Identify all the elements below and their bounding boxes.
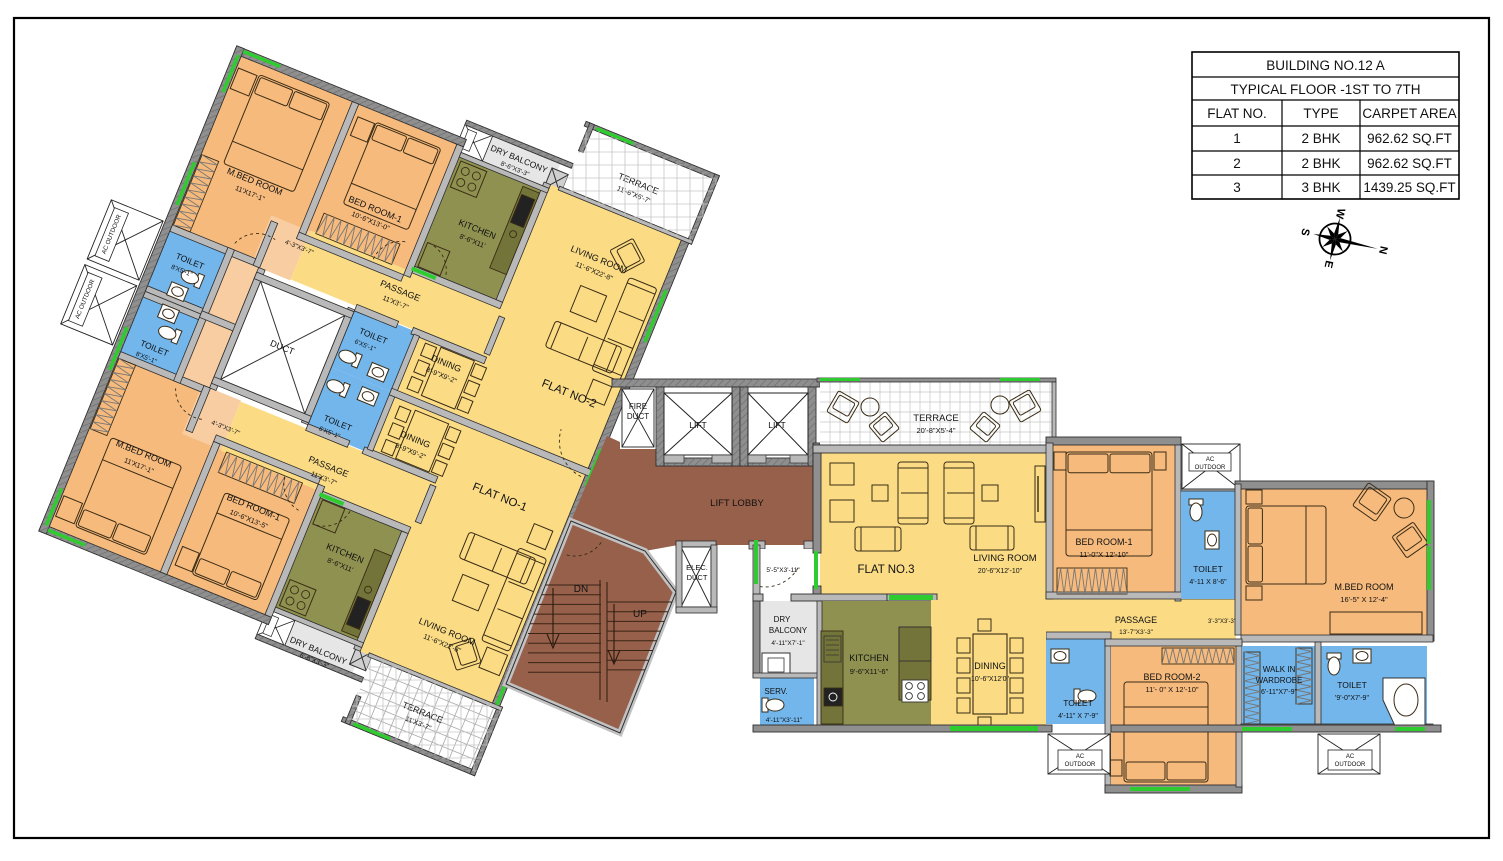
svg-text:PASSAGE: PASSAGE xyxy=(1115,615,1157,625)
svg-text:OUTDOOR: OUTDOOR xyxy=(1335,762,1366,768)
svg-text:5'-5"X3'-11": 5'-5"X3'-11" xyxy=(766,567,800,574)
svg-text:20'-6"X12'-10": 20'-6"X12'-10" xyxy=(978,568,1023,575)
svg-text:ELEC.: ELEC. xyxy=(686,563,708,572)
svg-text:TOILET: TOILET xyxy=(1063,698,1093,708)
svg-text:BUILDING NO.12 A: BUILDING NO.12 A xyxy=(1266,58,1385,73)
svg-text:LIFT: LIFT xyxy=(689,420,706,430)
svg-text:BED ROOM-1: BED ROOM-1 xyxy=(1075,537,1132,547)
svg-text:'9'-0"X7'-9": '9'-0"X7'-9" xyxy=(1335,695,1369,702)
svg-text:LIFT LOBBY: LIFT LOBBY xyxy=(710,498,764,509)
svg-text:DN: DN xyxy=(574,584,588,595)
svg-text:962.62 SQ.FT: 962.62 SQ.FT xyxy=(1367,156,1452,171)
svg-text:3 BHK: 3 BHK xyxy=(1301,180,1340,195)
svg-text:2 BHK: 2 BHK xyxy=(1301,156,1340,171)
svg-text:3'-3"X3'-3": 3'-3"X3'-3" xyxy=(1208,619,1236,625)
svg-text:4'-11"X7'-1": 4'-11"X7'-1" xyxy=(771,640,805,647)
svg-text:LIFT: LIFT xyxy=(768,420,785,430)
svg-text:FLAT NO.: FLAT NO. xyxy=(1207,106,1267,121)
svg-text:TOILET: TOILET xyxy=(1337,680,1367,690)
svg-text:11'- 0" X 12'-10": 11'- 0" X 12'-10" xyxy=(1145,685,1198,694)
svg-text:4'-11" X 7'-9": 4'-11" X 7'-9" xyxy=(1058,713,1098,720)
svg-text:TOILET: TOILET xyxy=(1193,564,1223,574)
svg-text:6'-11"X7'-9": 6'-11"X7'-9" xyxy=(1261,689,1297,696)
svg-text:OUTDOOR: OUTDOOR xyxy=(1065,762,1096,768)
svg-text:20'-8"X5'-4": 20'-8"X5'-4" xyxy=(916,426,955,435)
svg-text:WALK IN: WALK IN xyxy=(1263,665,1296,674)
svg-text:3: 3 xyxy=(1233,180,1241,195)
svg-text:CARPET AREA: CARPET AREA xyxy=(1362,106,1456,121)
svg-text:10'-6"X12'0": 10'-6"X12'0" xyxy=(971,676,1010,683)
svg-text:1439.25 SQ.FT: 1439.25 SQ.FT xyxy=(1363,180,1455,195)
svg-text:DUCT: DUCT xyxy=(687,573,708,582)
svg-text:OUTDOOR: OUTDOOR xyxy=(1195,465,1226,471)
svg-text:11'-0"X 12'-10": 11'-0"X 12'-10" xyxy=(1080,550,1129,559)
svg-text:4'-11"X3'-11": 4'-11"X3'-11" xyxy=(766,717,803,724)
svg-text:TYPE: TYPE xyxy=(1303,106,1338,121)
svg-text:LIVING ROOM: LIVING ROOM xyxy=(973,553,1036,564)
svg-text:13'-7"X3'-3": 13'-7"X3'-3" xyxy=(1119,629,1154,636)
svg-text:AC: AC xyxy=(1346,754,1355,760)
svg-text:UP: UP xyxy=(633,609,647,620)
svg-text:WARDROBE: WARDROBE xyxy=(1256,676,1303,685)
svg-text:M.BED ROOM: M.BED ROOM xyxy=(1334,582,1393,592)
svg-text:KITCHEN: KITCHEN xyxy=(849,653,889,663)
svg-text:AC: AC xyxy=(1076,754,1085,760)
svg-text:962.62 SQ.FT: 962.62 SQ.FT xyxy=(1367,131,1452,146)
svg-text:SERV.: SERV. xyxy=(764,687,787,696)
svg-text:16'-5" X 12'-4": 16'-5" X 12'-4" xyxy=(1340,595,1388,604)
svg-text:FIRE: FIRE xyxy=(629,402,647,411)
svg-text:TERRACE: TERRACE xyxy=(913,413,958,424)
svg-text:1: 1 xyxy=(1233,131,1241,146)
svg-text:DRY: DRY xyxy=(774,615,791,624)
svg-text:2 BHK: 2 BHK xyxy=(1301,131,1340,146)
svg-text:4'-11 X 8'-6": 4'-11 X 8'-6" xyxy=(1189,579,1227,586)
svg-text:FLAT NO.3: FLAT NO.3 xyxy=(857,564,914,576)
svg-text:AC: AC xyxy=(1206,457,1215,463)
svg-text:BALCONY: BALCONY xyxy=(769,626,808,635)
svg-text:DUCT: DUCT xyxy=(627,412,649,421)
svg-text:BED ROOM-2: BED ROOM-2 xyxy=(1143,672,1200,682)
svg-text:DINING: DINING xyxy=(974,661,1006,671)
svg-text:2: 2 xyxy=(1233,156,1241,171)
svg-text:TYPICAL FLOOR -1ST TO 7TH: TYPICAL FLOOR -1ST TO 7TH xyxy=(1230,82,1420,97)
svg-text:9'-6"X11'-6": 9'-6"X11'-6" xyxy=(850,667,889,676)
